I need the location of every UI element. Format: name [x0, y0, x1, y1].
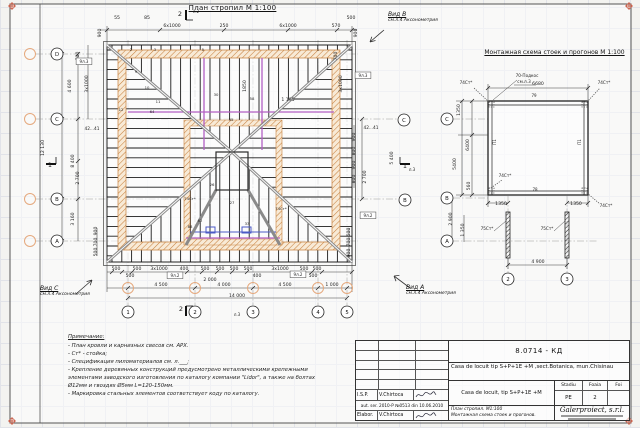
- dim-label: л.3: [234, 312, 241, 317]
- dim-label: 74Ст*: [460, 80, 473, 85]
- post-axis-2: [506, 212, 510, 258]
- company-logo: Galerproiect, s.r.l.: [555, 406, 629, 420]
- view-a-sub: см.л.4 Аксонометрия: [406, 291, 456, 296]
- note-line: - Маркировка стальных элементов соответс…: [68, 391, 318, 399]
- dim-label: 3x1000: [84, 75, 90, 92]
- dim-label: 88: [188, 224, 193, 229]
- isp-signature: [414, 390, 448, 400]
- svg-text:3: 3: [565, 277, 568, 283]
- stadiu-header: Stadiu: [555, 381, 583, 390]
- dim-label: 78: [532, 187, 538, 192]
- dim-label: 500: [244, 266, 253, 272]
- svg-text:1: 1: [126, 310, 129, 316]
- drawing-sheet-page: { "colors":{ "line":"#1c1c1c","dim":"#2a…: [0, 0, 640, 428]
- axis-row-C: C: [51, 113, 63, 125]
- dim-label: 500: [346, 228, 352, 237]
- license-row: aut. ser. 2010-P №0513 din 10.06.2010: [356, 401, 448, 411]
- dim-label: 6400: [465, 139, 471, 151]
- dim-label: 27: [230, 200, 235, 205]
- dim-label: 30: [214, 92, 219, 97]
- view-c-label: Вид C см.л.4 Аксонометрия: [40, 285, 90, 297]
- scheme-title: Монтажная схема стоек и прогонов М 1:100: [462, 49, 640, 56]
- dim-label: 75Ст*: [541, 226, 554, 231]
- dim-label: 1350: [570, 201, 582, 207]
- isp-name: V.Chirtoca: [378, 390, 414, 400]
- elaborator-role: Elabor.: [356, 411, 378, 420]
- elaborator-row: Elabor. V.Chirtoca: [356, 411, 448, 420]
- dim-label: 2 700: [75, 171, 81, 184]
- foaia-value: 2: [583, 391, 608, 405]
- dim-label: П1: [577, 139, 582, 145]
- dim-label: 500: [313, 266, 322, 272]
- dim-label: 2 900: [448, 212, 454, 225]
- dim-label: 500: [216, 266, 225, 272]
- axis-row-B: B: [51, 193, 63, 205]
- dim-label: 500: [93, 248, 99, 257]
- project-code: 8.0714 - КД: [449, 341, 629, 363]
- dim-label: 55: [114, 15, 120, 21]
- axis-col-4: 4: [312, 306, 324, 318]
- dim-label: 700: [333, 52, 339, 61]
- dim-label: 4 500: [278, 282, 291, 288]
- dim-label: 1 350: [460, 223, 466, 236]
- dim-label: 12: [119, 107, 124, 112]
- dim-label: 900: [346, 249, 352, 258]
- dim-label: 12 130: [40, 140, 46, 156]
- dim-label: 74Ст*: [600, 203, 613, 208]
- scheme-axis-row-B: B: [441, 192, 453, 204]
- dim-label: л.3: [409, 167, 416, 172]
- dim-label: 85: [144, 15, 150, 21]
- plan-title: План стропил М 1:100: [150, 4, 315, 12]
- dim-label: 3x1000: [271, 266, 288, 272]
- svg-text:2: 2: [506, 277, 509, 283]
- dim-label: 900: [97, 29, 103, 38]
- dim-label: 1: [403, 162, 407, 170]
- isp-role: I.S.P.: [356, 390, 378, 400]
- empty-row: [356, 351, 448, 361]
- view-b-name: Вид B: [388, 11, 438, 18]
- dim-label: 6680: [532, 81, 544, 87]
- dim-label: 500: [126, 273, 135, 279]
- dim-label: 9л.3: [80, 59, 89, 64]
- axis-col-3: 3: [247, 306, 259, 318]
- post-axis-3: [565, 212, 569, 258]
- svg-text:2: 2: [193, 310, 196, 316]
- foi-header: Foi: [608, 381, 629, 390]
- svg-text:C: C: [55, 117, 59, 123]
- dim-label: 3x1000: [150, 266, 167, 272]
- dim-label: 4 000: [217, 282, 230, 288]
- dim-label: 5400: [452, 158, 458, 170]
- elaborator-name: V.Chirtoca: [378, 411, 414, 420]
- dim-label: 400: [253, 273, 262, 279]
- foaia-header: Foaia: [583, 381, 608, 390]
- notes-title: Примечание:: [68, 334, 318, 342]
- axis-col-1: 1: [122, 306, 134, 318]
- dim-label: 74Ст*: [275, 206, 287, 211]
- sheet-content-title: План стропил. М1:100 Монтажная схема сто…: [449, 406, 555, 420]
- title-block-main: 8.0714 - КД Casa de locuit tip S+P+1E +M…: [449, 341, 629, 420]
- axis-row-right-B: B: [399, 194, 411, 206]
- foi-value: [608, 391, 629, 405]
- empty-row: [356, 341, 448, 351]
- dim-label: 62: [198, 218, 203, 223]
- dim-label: 700: [93, 238, 99, 247]
- svg-text:C: C: [445, 117, 449, 123]
- dim-label: 1 195: [281, 97, 294, 103]
- svg-text:B: B: [55, 197, 59, 203]
- dim-label: 4 600: [67, 79, 73, 92]
- note-line: - План кровли и карнизных свесов см. АРХ…: [68, 343, 318, 351]
- axis-row-right-C: C: [398, 114, 410, 126]
- dim-label: 1350: [456, 104, 462, 116]
- dim-label: 900: [351, 161, 357, 170]
- dim-label: 1 000: [325, 282, 338, 288]
- dim-label: 700: [346, 238, 352, 247]
- view-a-name: Вид A: [406, 284, 456, 291]
- dim-label: 10: [145, 85, 150, 90]
- dim-label: 4 500: [154, 282, 167, 288]
- view-a-label: Вид A см.л.4 Аксонометрия: [406, 284, 456, 296]
- dim-label: 500: [347, 15, 356, 21]
- svg-text:A: A: [445, 239, 449, 245]
- note-line: - Ст* - стойка;: [68, 351, 318, 359]
- dim-label: 8 400: [70, 154, 76, 167]
- dim-label: 6x1000: [279, 23, 296, 29]
- dim-label: 42...41: [363, 125, 378, 131]
- scheme-axis-col-2: 2: [502, 273, 514, 285]
- axis-col-5: 5: [341, 306, 353, 318]
- scheme-axis-row-C: C: [441, 113, 453, 125]
- dim-label: 400: [180, 266, 189, 272]
- dim-label: 9л.3: [359, 73, 368, 78]
- dim-label: П1: [492, 139, 497, 145]
- stadiu-value: PE: [555, 391, 583, 405]
- dim-label: 500: [230, 266, 239, 272]
- dim-label: 9л.2: [364, 213, 373, 218]
- dim-label: 74Ст*: [499, 173, 512, 178]
- dim-label: 74Ст*: [598, 80, 611, 85]
- view-b-label: Вид B см.л.4 Аксонометрия: [388, 11, 438, 23]
- dim-label: 74Ст*: [184, 196, 196, 201]
- logo-bar: [561, 415, 623, 417]
- dim-label: 900: [351, 133, 357, 142]
- dim-label: 58: [250, 96, 255, 101]
- dim-label: 500: [201, 266, 210, 272]
- company-name: Galerproiect, s.r.l.: [560, 406, 624, 414]
- sheet-title-line2: Монтажная схема стоек и прогонов.: [451, 413, 552, 419]
- stage-sheet-table: Stadiu Foaia Foi PE 2: [555, 381, 629, 405]
- svg-text:3: 3: [251, 310, 254, 316]
- dim-label: 560: [466, 182, 472, 191]
- empty-row: [356, 380, 448, 390]
- dim-label: 900: [353, 29, 359, 38]
- empty-row: [356, 361, 448, 371]
- view-b-sub: см.л.4 Аксонометрия: [388, 18, 438, 23]
- rafter-plan: [104, 42, 356, 266]
- dim-label: 3 160: [70, 212, 76, 225]
- svg-text:C: C: [402, 118, 406, 124]
- dim-label: 11: [156, 99, 161, 104]
- dim-label: 900: [93, 227, 99, 236]
- notes-block: Примечание: - План кровли и карнизных св…: [68, 334, 318, 399]
- dim-label: 9л.2: [294, 272, 303, 277]
- dim-label: 35: [229, 117, 234, 122]
- scheme-axis-col-3: 3: [561, 273, 573, 285]
- dim-label: см.л.3: [517, 79, 531, 84]
- dim-label: 14 000: [229, 293, 245, 299]
- dim-label: 1350: [495, 201, 507, 207]
- dim-label: 2 700: [362, 170, 368, 183]
- dim-label: 75Ст*: [481, 226, 494, 231]
- dim-label: 33: [245, 221, 250, 226]
- dim-label: 3x1000: [338, 75, 344, 92]
- dim-label: 1: [48, 161, 52, 169]
- dim-label: 500: [112, 266, 121, 272]
- elaborator-signature: [414, 411, 448, 420]
- svg-text:D: D: [55, 52, 59, 58]
- svg-text:A: A: [55, 239, 59, 245]
- dim-label: 64: [150, 109, 155, 114]
- logo-bar: [568, 418, 616, 420]
- dim-label: 2: [179, 305, 183, 313]
- svg-text:B: B: [445, 196, 449, 202]
- dim-label: 42...41: [84, 126, 99, 132]
- view-c-sub: см.л.4 Аксонометрия: [40, 292, 90, 297]
- dim-label: 500: [133, 266, 142, 272]
- dim-label: 6x1000: [163, 23, 180, 29]
- dim-label: 250: [220, 23, 229, 29]
- svg-text:5: 5: [345, 310, 348, 316]
- isp-row: I.S.P. V.Chirtoca: [356, 390, 448, 401]
- empty-row: [356, 370, 448, 380]
- dim-label: 570: [332, 23, 341, 29]
- dim-label: 70-Подкос: [516, 73, 540, 78]
- axis-row-A: A: [51, 235, 63, 247]
- view-c-name: Вид C: [40, 285, 90, 292]
- dim-label: 1850: [242, 80, 248, 92]
- svg-text:B: B: [403, 198, 407, 204]
- dim-label: 500: [309, 273, 318, 279]
- scheme-axis-row-A: A: [441, 235, 453, 247]
- dim-label: 79: [531, 93, 537, 98]
- title-block: I.S.P. V.Chirtoca aut. ser. 2010-P №0513…: [355, 340, 630, 421]
- dim-label: 800: [351, 175, 357, 184]
- axis-row-D: D: [51, 48, 63, 60]
- dim-label: 2 000: [203, 277, 216, 283]
- title-block-signatures: I.S.P. V.Chirtoca aut. ser. 2010-P №0513…: [356, 341, 449, 420]
- project-object: Casa de locuit tip S+P+1E +M ,sect.Botan…: [449, 363, 629, 382]
- axis-col-2: 2: [189, 306, 201, 318]
- dim-label: 5 400: [389, 151, 395, 164]
- note-line: - Спецификация пиломатериалов см. л.___;: [68, 359, 318, 367]
- dim-label: 800: [351, 147, 357, 156]
- dim-label: 9л.2: [171, 273, 180, 278]
- object-name: Casa de locuit, tip S+P+1E +M: [449, 381, 555, 405]
- dim-label: 26: [210, 182, 215, 187]
- dim-label: 4 900: [531, 259, 544, 265]
- note-line: - Крепление деревянных конструкций преду…: [68, 367, 318, 391]
